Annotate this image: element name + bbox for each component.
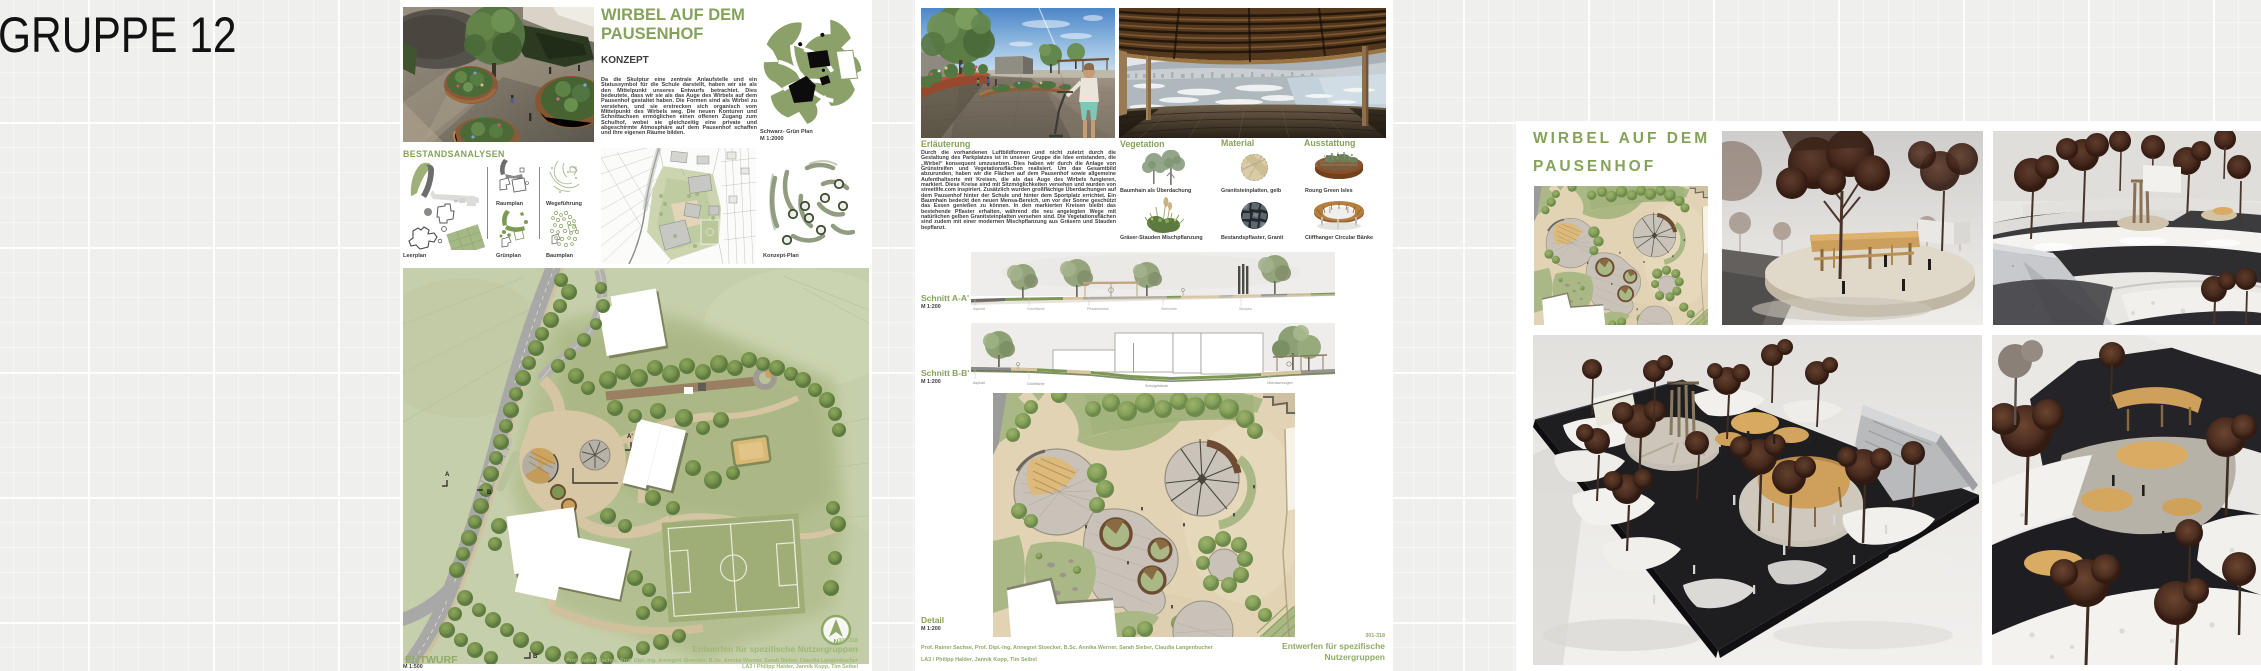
svg-text:Pflasterkreise: Pflasterkreise [1087, 307, 1109, 311]
svg-text:A': A' [627, 434, 633, 440]
svg-text:Skulptur: Skulptur [1239, 307, 1253, 311]
svg-text:Überdachungen: Überdachungen [1267, 381, 1293, 385]
svg-text:A: A [445, 472, 450, 478]
svg-text:Steinmale: Steinmale [1161, 307, 1177, 311]
svg-text:B': B' [533, 654, 539, 660]
svg-text:Asphalt: Asphalt [973, 307, 985, 311]
svg-text:B: B [487, 490, 492, 496]
svg-text:Asphalt: Asphalt [973, 381, 985, 385]
svg-text:Grünfläche: Grünfläche [1027, 382, 1045, 386]
svg-text:ENTWURF: ENTWURF [405, 654, 458, 664]
svg-text:Entwerfen für spezifische Nutz: Entwerfen für spezifische Nutzergruppen [692, 644, 858, 654]
svg-text:Schulgebäude: Schulgebäude [1145, 384, 1168, 388]
svg-text:Grünfläche: Grünfläche [1027, 307, 1045, 311]
